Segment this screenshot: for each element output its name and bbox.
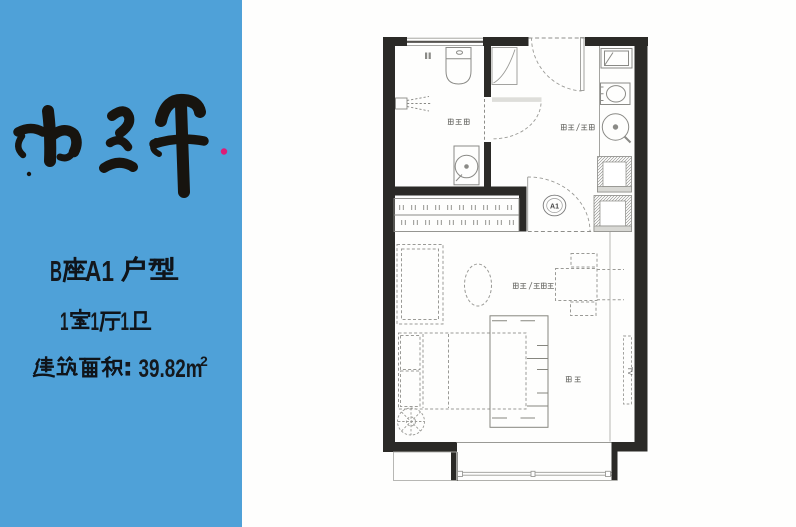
svg-text:A1: A1: [85, 256, 114, 288]
svg-text:TV: TV: [626, 367, 633, 376]
svg-text:2: 2: [200, 353, 208, 369]
svg-text:1: 1: [91, 308, 100, 336]
svg-text:B: B: [50, 256, 62, 288]
svg-text:1: 1: [121, 308, 130, 336]
svg-text:1: 1: [60, 308, 69, 336]
svg-text:A1: A1: [550, 203, 559, 210]
svg-text:39.82m: 39.82m: [139, 355, 203, 383]
